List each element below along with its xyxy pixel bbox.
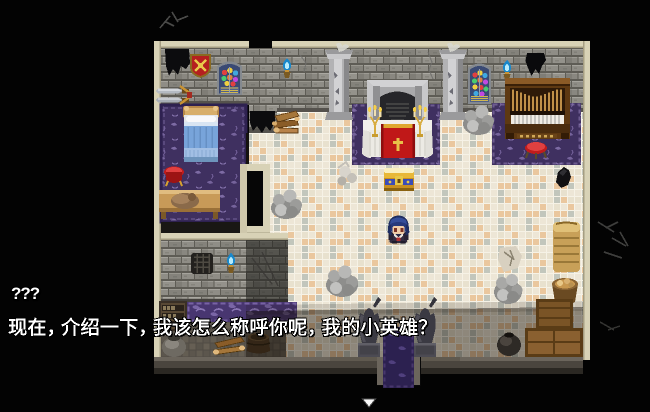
- svg-text:???: ???: [11, 284, 40, 303]
